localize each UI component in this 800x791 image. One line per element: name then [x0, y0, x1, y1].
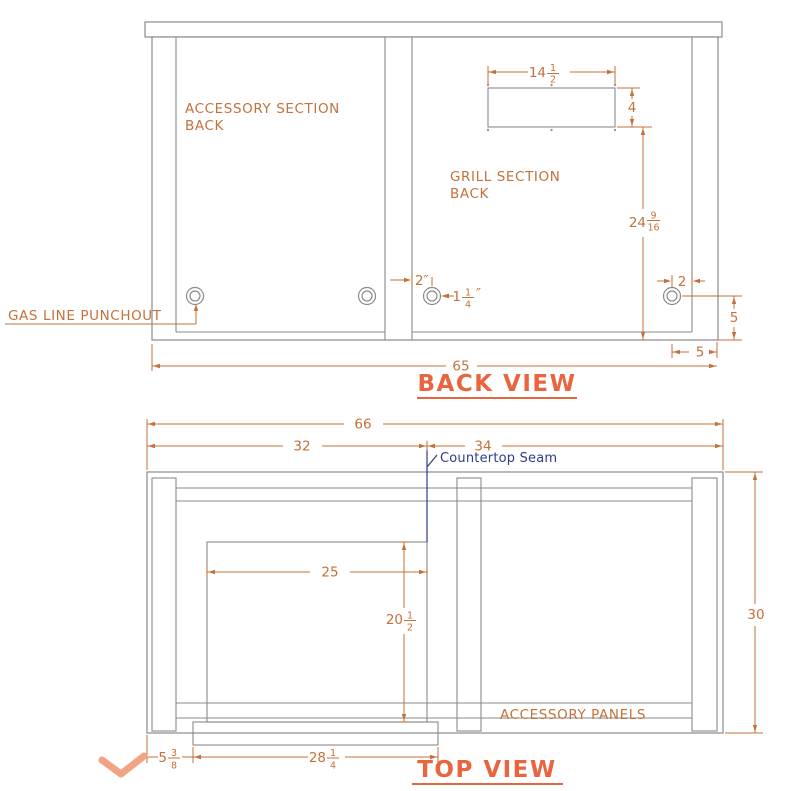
svg-text:″: ″ [476, 286, 481, 302]
svg-text:8: 8 [171, 761, 177, 772]
svg-text:25: 25 [321, 565, 338, 581]
dim-punchout-from-side: 5 [672, 342, 717, 361]
top-view: Countertop Seam 66 32 34 25 20 1 [102, 417, 765, 785]
gas-punchout-1 [187, 288, 204, 305]
svg-text:4: 4 [628, 100, 637, 116]
top-countertop-outline [147, 472, 723, 733]
cad-drawing: ACCESSORY SECTION BACK GRILL SECTION BAC… [0, 0, 800, 791]
dim-grill-side-width: 32 [293, 439, 310, 455]
svg-text:4: 4 [330, 761, 336, 772]
grill-section-label-line2: BACK [450, 186, 489, 202]
vent-tick [614, 84, 616, 86]
grill-section-label-line1: GRILL SECTION [450, 169, 560, 185]
svg-text:1: 1 [550, 63, 556, 74]
vent-tick [487, 84, 489, 86]
accessory-section-label-line2: BACK [185, 118, 224, 134]
svg-text:4: 4 [465, 300, 471, 311]
gas-line-punchout-label: GAS LINE PUNCHOUT [8, 308, 162, 324]
svg-text:14: 14 [529, 65, 546, 81]
dim-accessory-side-width: 34 [474, 439, 491, 455]
svg-text:30: 30 [747, 607, 764, 623]
svg-text:1: 1 [330, 748, 336, 759]
svg-text:1: 1 [452, 289, 461, 305]
svg-text:1: 1 [465, 288, 471, 299]
svg-text:9: 9 [650, 211, 656, 222]
dim-section-widths: 32 34 [147, 439, 723, 455]
gas-punchout-4 [664, 288, 681, 305]
dim-island-depth: 30 [725, 472, 765, 733]
checkmark-decoration [102, 756, 144, 774]
accessory-section-label-line1: ACCESSORY SECTION [185, 101, 340, 117]
gas-punchout-2 [359, 288, 376, 305]
svg-text:20: 20 [386, 612, 403, 628]
gas-punchout-3 [424, 288, 441, 305]
svg-text:28: 28 [309, 750, 326, 766]
back-countertop-strip [145, 22, 722, 37]
countertop-seam-label: Countertop Seam [440, 451, 557, 466]
vent-tick [550, 129, 552, 131]
svg-text:2: 2 [407, 623, 413, 634]
svg-text:5: 5 [696, 345, 705, 361]
vent-tick [487, 129, 489, 131]
svg-text:24: 24 [629, 215, 646, 231]
top-view-title: TOP VIEW [417, 757, 557, 783]
svg-text:1: 1 [407, 611, 413, 622]
dim-total-width: 66 [147, 417, 723, 471]
svg-text:2″: 2″ [415, 273, 429, 289]
svg-text:16: 16 [647, 223, 659, 234]
vent-tick [614, 129, 616, 131]
svg-text:5: 5 [730, 310, 739, 326]
accessory-panels-label: ACCESSORY PANELS [500, 707, 646, 723]
svg-text:66: 66 [354, 417, 371, 433]
dim-front-width: 28 1 4 [193, 747, 438, 772]
svg-text:3: 3 [171, 748, 177, 759]
svg-text:2: 2 [550, 75, 556, 86]
back-view-title: BACK VIEW [418, 371, 577, 397]
svg-text:5: 5 [158, 750, 167, 766]
back-view: ACCESSORY SECTION BACK GRILL SECTION BAC… [5, 22, 742, 398]
svg-text:2: 2 [678, 274, 687, 290]
dim-cabinet-width: 65 [152, 344, 717, 375]
drawing-canvas: ACCESSORY SECTION BACK GRILL SECTION BAC… [0, 0, 800, 791]
